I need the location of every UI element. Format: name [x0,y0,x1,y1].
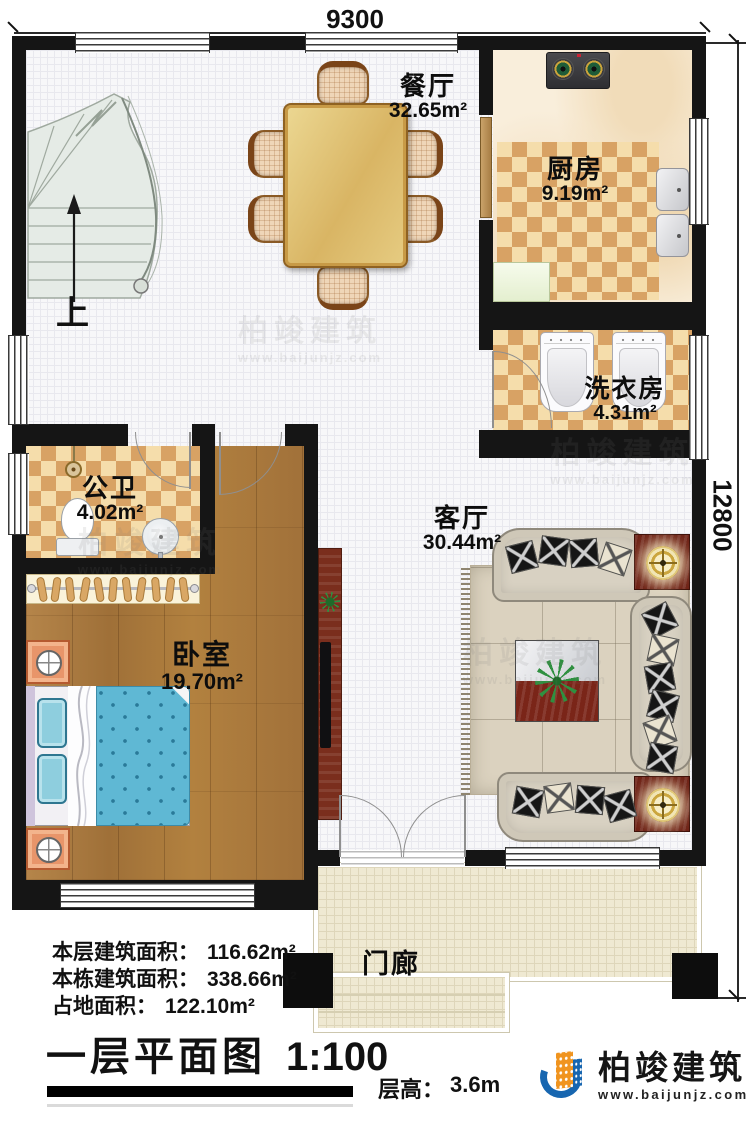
company-logo-icon [540,1048,590,1104]
sofa-pillow [538,535,570,567]
closet-hangers [38,576,188,602]
sofa-pillow [543,782,575,814]
hanger-icon [178,576,189,602]
hanger-icon [65,576,76,602]
window-top-1 [75,32,210,53]
closet-rod-cap-left [27,584,36,593]
logo-building-orange-icon [556,1051,573,1089]
porch-step-line [318,1011,505,1013]
rug-fringe [461,565,470,795]
bed-blanket-fold [68,686,96,826]
bedroom-door-leaf [219,432,221,495]
area-summary-row-3: 占地面积： 122.10m² [52,990,255,1020]
dining-name: 餐厅 [378,72,478,100]
area-label: 本栋建筑面积： [52,963,199,993]
wall-kitchen-left-lower [479,220,493,302]
floor-height-value: 3.6m [450,1072,500,1104]
tv [320,642,331,748]
nightstand-lamp [36,650,62,676]
wall-laundry-left [479,330,493,350]
wall-living-bottom-c [658,850,706,866]
window-bedroom-bottom [60,883,255,908]
logo-company-name: 柏竣建筑 [598,1051,749,1084]
bed-pillow-1 [37,698,67,748]
kitchen-sink-basin-1 [656,168,689,211]
laundry-name: 洗衣房 [565,376,685,403]
area-summary-row-1: 本层建筑面积： 116.62m² [52,936,296,966]
bathroom-area: 4.02m² [60,502,160,525]
wall-living-bottom-a [318,850,340,866]
porch-label: 门廊 [336,950,446,979]
coffee-table-plant [535,659,579,703]
logo-website: www.baijunjz.com [598,1087,749,1102]
title-underline-thin [47,1104,353,1107]
window-left-2 [8,453,29,535]
wall-bathroom-top-b [192,424,215,446]
laundry-door-leaf [492,351,494,428]
kitchen-area: 9.19m² [525,183,625,206]
area-summary-row-2: 本栋建筑面积： 338.66m² [52,963,297,993]
company-logo: 柏竣建筑 www.baijunjz.com [540,1048,749,1104]
sofa-pillow [575,785,605,815]
dining-label: 餐厅 32.65m² [378,72,478,123]
area-label: 占地面积： [52,990,157,1020]
plan-title-row: 一层平面图 1:100 [46,1024,388,1082]
area-value: 122.10m² [165,995,255,1019]
laundry-area: 4.31m² [565,403,685,425]
table-lamp-icon [646,788,680,822]
wall-laundry-bottom [479,430,692,458]
porch-steps [318,977,505,1028]
blanket-fold-curves [68,686,96,826]
laundry-label: 洗衣房 4.31m² [565,376,685,425]
kitchen-door-panel [480,117,492,218]
stove-burner-right [583,58,605,80]
wall-kitchen-left-upper [479,50,493,115]
hanger-icon [36,576,48,602]
hanger-icon [135,576,147,602]
kitchen-counter [493,262,550,302]
bathroom-door-leaf [189,432,191,489]
hanger-icon [50,576,61,602]
kitchen-label: 厨房 9.19m² [525,155,625,206]
stove-burner-left [552,58,574,80]
wall-bathroom-right [200,446,215,558]
area-value: 116.62m² [207,941,296,965]
bedroom-label: 卧室 19.70m² [152,640,252,694]
dining-chair-bottom [317,266,369,310]
window-left-1 [8,335,29,425]
hanger-icon [150,576,160,602]
title-underline-bar [47,1086,353,1097]
gas-stove [546,52,610,89]
living-area: 30.44m² [412,532,512,555]
closet-rod-cap-right [190,584,199,593]
bathroom-label: 公卫 4.02m² [60,474,160,525]
dining-table [283,103,408,268]
washer-controls [616,335,662,344]
plan-title: 一层平面图 [46,1024,266,1082]
kitchen-sink-basin-2 [656,214,689,257]
living-name: 客厅 [412,504,512,532]
table-lamp-icon [646,546,680,580]
hanger-icon [93,576,105,602]
nightstand-top [26,640,70,684]
plan-scale: 1:100 [286,1035,388,1080]
stairs-up-label: 上 [56,286,89,334]
toilet-tank [56,538,99,556]
sofa-pillow [644,662,676,694]
bathroom-name: 公卫 [60,474,160,502]
logo-text: 柏竣建筑 www.baijunjz.com [598,1051,749,1102]
bedroom-name: 卧室 [152,640,252,670]
floor-height-row: 层高： 3.6m [378,1072,500,1104]
sofa-pillow [646,633,679,666]
bed-quilt [96,686,190,826]
dimension-right-label: 12800 [707,470,738,562]
washer-controls [544,335,590,344]
nightstand-bottom [26,828,70,870]
area-label: 本层建筑面积： [52,936,199,966]
porch-pillar-right [672,953,718,999]
hanger-icon [78,576,90,602]
wall-bedroom-right [304,424,318,880]
window-living-bottom [505,847,660,869]
wall-bathroom-bottom [26,558,215,574]
wall-kitchen-laundry [479,302,692,330]
main-door-right-leaf [464,795,466,857]
area-value: 338.66m² [207,968,297,992]
dining-chair-top [317,61,369,105]
kitchen-name: 厨房 [525,155,625,183]
bed-pillow-2 [37,754,67,804]
bedroom-area: 19.70m² [152,670,252,694]
dimension-top-label: 9300 [305,4,405,35]
side-table-top [634,534,690,590]
tv-cabinet-plant [320,592,340,612]
hanger-icon [108,576,118,602]
window-right-kitchen [689,118,709,225]
sofa-pillow [646,742,678,774]
hanger-icon [122,576,133,602]
floorplan-page: { "plan": { "title": "一层平面图", "scale": "… [0,0,750,1122]
living-label: 客厅 30.44m² [412,504,512,555]
window-top-2 [305,32,458,53]
dining-area: 32.65m² [378,100,478,123]
bed-headboard-strip [26,686,35,826]
hanger-icon [164,576,175,602]
sofa-pillow [569,538,599,568]
logo-building-blue-icon [573,1058,582,1086]
window-right-living [689,335,709,460]
nightstand-lamp [36,837,62,863]
dimension-top-tick-right [699,21,710,32]
side-table-bottom [634,776,690,832]
porch-step-line [318,994,505,996]
wall-living-bottom-b [465,850,507,866]
dimension-top-tick-left [7,21,18,32]
stove-logo-dot [577,54,581,57]
floor-height-label: 层高： [378,1072,444,1104]
sofa-pillow [512,786,544,818]
stairs [26,88,216,318]
main-door-left-leaf [339,795,341,857]
porch-name: 门廊 [336,950,446,979]
wall-bathroom-top-a [26,424,128,446]
